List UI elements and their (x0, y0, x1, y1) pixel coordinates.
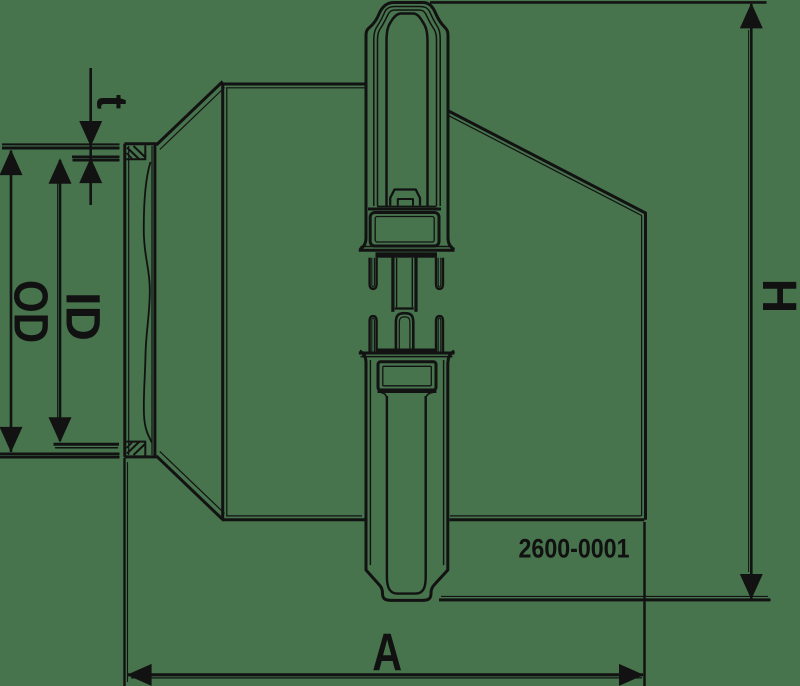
svg-text:OD: OD (4, 280, 58, 343)
svg-text:t: t (88, 94, 137, 109)
svg-text:2600-0001: 2600-0001 (518, 534, 629, 564)
svg-text:H: H (752, 279, 800, 314)
svg-text:ID: ID (56, 292, 109, 341)
svg-text:A: A (372, 624, 402, 683)
